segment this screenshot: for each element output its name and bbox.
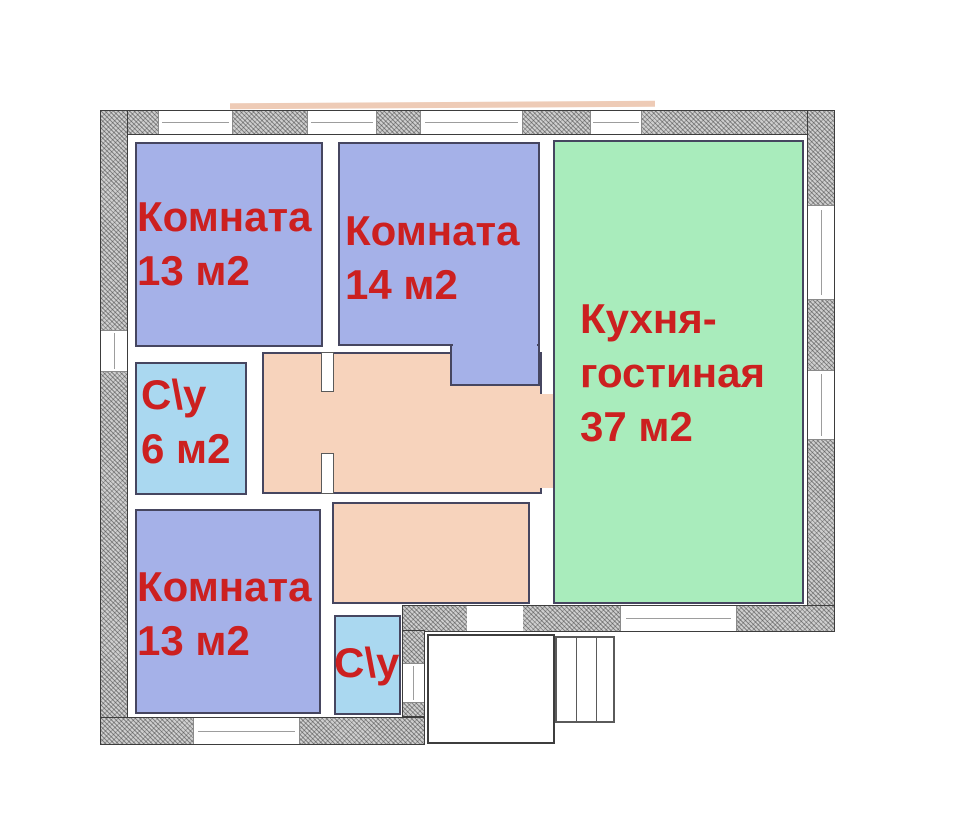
window-pane: [198, 731, 295, 732]
hallway-kitchen-door-opening: [540, 394, 553, 488]
room-name: Комната: [137, 190, 311, 244]
room-13-bottom-label: Комната 13 м2: [137, 560, 311, 668]
window-pane: [114, 333, 115, 370]
window-pane: [821, 374, 822, 437]
bathroom-small-label: С\у: [334, 636, 399, 690]
window-right-1: [808, 205, 834, 300]
window-right-2: [808, 370, 834, 440]
floor-plan: Комната 13 м2 Комната 14 м2 Кухня- гости…: [0, 0, 960, 813]
window-pane: [626, 618, 732, 619]
wall-stub-lower: [321, 453, 334, 494]
window-pane: [821, 210, 822, 296]
room-name: С\у: [334, 636, 399, 690]
room-area: 13 м2: [137, 244, 311, 298]
room-name: гостиная: [580, 346, 765, 400]
entry-door-opening: [467, 606, 523, 631]
window-bottom-left: [193, 718, 300, 744]
wall-left: [100, 110, 128, 745]
room-name: Комната: [137, 560, 311, 614]
window-pane: [593, 122, 639, 123]
room-13-top-label: Комната 13 м2: [137, 190, 311, 298]
window-pane: [413, 666, 414, 701]
roof-edge-line: [230, 101, 655, 110]
room-name: Кухня-: [580, 292, 765, 346]
window-bottom-kitchen: [620, 606, 737, 631]
window-top-2: [307, 111, 377, 134]
room-area: 13 м2: [137, 614, 311, 668]
kitchen-living-label: Кухня- гостиная 37 м2: [580, 292, 765, 453]
bathroom-6-label: С\у 6 м2: [141, 368, 230, 476]
hallway-lower: [332, 502, 530, 604]
room-area: 37 м2: [580, 400, 765, 454]
window-pane: [425, 122, 518, 123]
window-step-wall: [403, 663, 424, 703]
window-left-1: [101, 330, 127, 372]
room-area: 6 м2: [141, 422, 230, 476]
room-14-extension: [450, 344, 540, 386]
window-pane: [311, 122, 374, 123]
window-top-3: [420, 111, 523, 134]
room-name: С\у: [141, 368, 230, 422]
entry-steps: [555, 636, 615, 723]
window-top-1: [158, 111, 233, 134]
window-top-4: [590, 111, 642, 134]
room-14-join-patch: [453, 343, 537, 349]
window-pane: [162, 122, 229, 123]
room-14-label: Комната 14 м2: [345, 204, 519, 312]
porch: [427, 634, 555, 744]
room-area: 14 м2: [345, 258, 519, 312]
room-name: Комната: [345, 204, 519, 258]
wall-stub-upper: [321, 352, 334, 392]
